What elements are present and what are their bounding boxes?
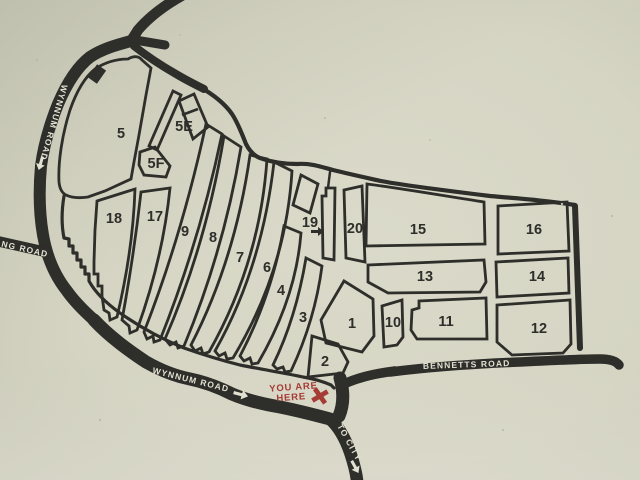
- svg-text:3: 3: [299, 310, 307, 326]
- svg-text:20: 20: [347, 221, 363, 237]
- svg-text:17: 17: [147, 209, 163, 225]
- svg-text:1: 1: [348, 316, 356, 332]
- svg-text:12: 12: [531, 321, 547, 337]
- svg-text:9: 9: [181, 224, 189, 240]
- svg-text:15: 15: [410, 222, 426, 238]
- svg-text:4: 4: [277, 283, 285, 299]
- svg-text:11: 11: [438, 314, 453, 330]
- svg-text:8: 8: [209, 230, 217, 246]
- svg-text:7: 7: [236, 250, 244, 266]
- svg-text:5: 5: [117, 126, 125, 142]
- svg-text:13: 13: [417, 269, 433, 285]
- svg-text:16: 16: [526, 222, 542, 238]
- svg-text:18: 18: [106, 211, 122, 227]
- svg-text:5E: 5E: [175, 119, 193, 135]
- svg-text:14: 14: [529, 269, 545, 285]
- svg-text:19: 19: [302, 215, 318, 231]
- svg-text:10: 10: [385, 315, 401, 331]
- svg-text:6: 6: [263, 260, 271, 276]
- svg-text:HERE: HERE: [276, 391, 306, 404]
- svg-text:2: 2: [321, 354, 329, 370]
- svg-text:5F: 5F: [148, 156, 165, 172]
